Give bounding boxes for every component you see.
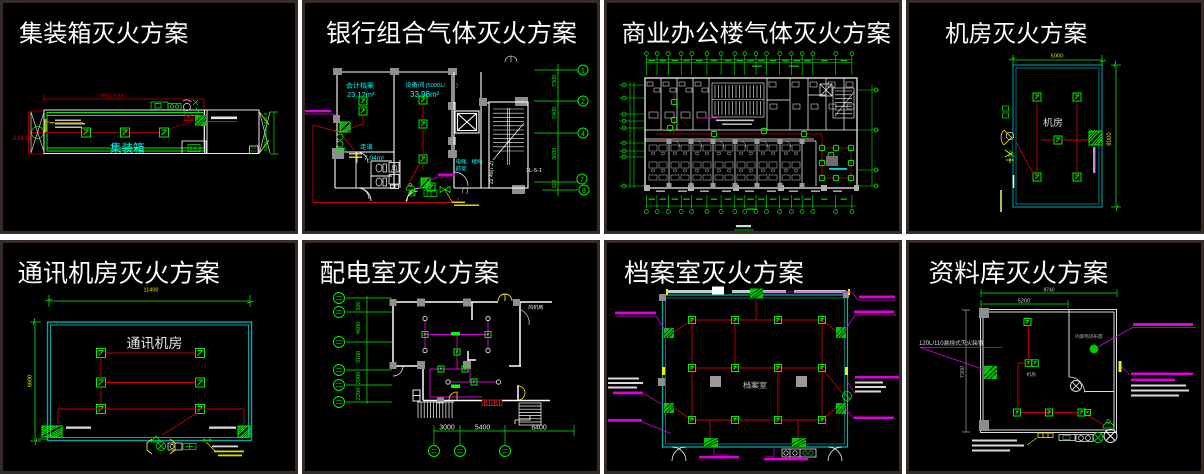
svg-text:11400: 11400 [144, 288, 159, 294]
svg-text:7300: 7300 [960, 366, 966, 378]
svg-text:7.04m²: 7.04m² [364, 155, 385, 162]
svg-text:8: 8 [582, 188, 586, 195]
svg-text:3600: 3600 [552, 148, 558, 160]
svg-text:2343.0: 2343.0 [13, 135, 33, 142]
svg-text:5000: 5000 [1051, 54, 1064, 60]
svg-text:4: 4 [581, 131, 585, 138]
svg-text:1: 1 [581, 68, 585, 75]
svg-text:3100: 3100 [356, 351, 362, 363]
svg-text:5400: 5400 [475, 425, 491, 432]
svg-text:2: 2 [581, 99, 585, 106]
svg-text:7300: 7300 [552, 75, 558, 87]
svg-text:2400: 2400 [552, 107, 558, 119]
svg-text:1L-5-1: 1L-5-1 [526, 168, 542, 174]
svg-text:300: 300 [356, 301, 362, 310]
svg-text:4600: 4600 [356, 322, 362, 334]
svg-text:3000: 3000 [439, 425, 455, 432]
svg-text:120L/110: 120L/110 [919, 341, 944, 347]
svg-text:5200: 5200 [1018, 299, 1030, 305]
svg-text:9860.9356: 9860.9356 [100, 94, 125, 100]
svg-text:8740: 8740 [1043, 288, 1054, 294]
svg-text:7: 7 [580, 177, 584, 184]
svg-text:600: 600 [552, 179, 558, 188]
svg-text:22.45(7.2): 22.45(7.2) [489, 161, 495, 184]
svg-text:2000: 2000 [356, 372, 362, 384]
svg-text:6600: 6600 [28, 375, 34, 387]
svg-text:(5000L/: (5000L/ [426, 83, 446, 89]
svg-text:): ) [456, 83, 458, 89]
svg-text:2438.0000=2438.0: 2438.0000=2438.0 [263, 112, 268, 151]
svg-text:2200: 2200 [356, 388, 362, 400]
svg-text:23.12m²: 23.12m² [347, 90, 375, 99]
svg-text:8000: 8000 [1107, 132, 1113, 146]
svg-text:8400: 8400 [531, 425, 547, 432]
